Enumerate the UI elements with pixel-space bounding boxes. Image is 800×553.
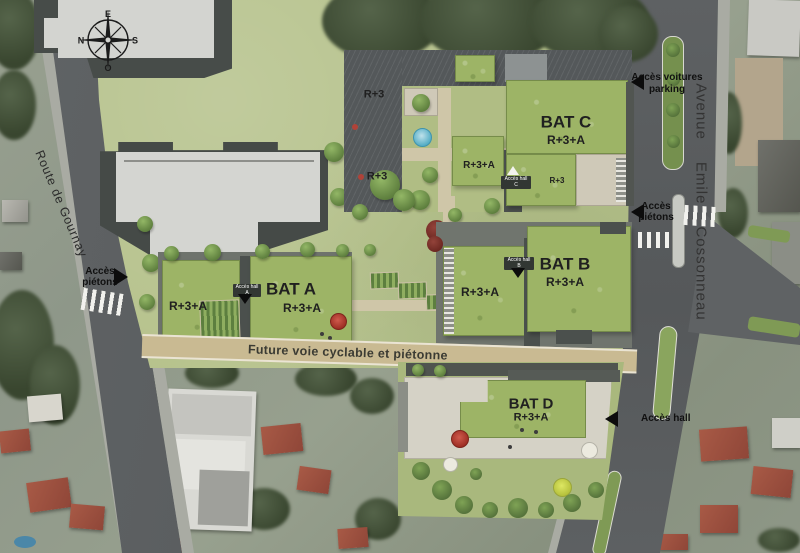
red-tree: [427, 236, 443, 252]
existing-building-2-main: [116, 152, 320, 222]
tree: [364, 244, 376, 256]
aerial-house: [26, 477, 72, 513]
floor-tag: R+3+A: [461, 286, 499, 298]
access-arrow-left-icon: [605, 411, 618, 427]
access-hall-c-badge: Accès hall C: [501, 176, 531, 189]
tree: [393, 189, 415, 211]
access-arrow-left-icon: [631, 74, 644, 90]
white-parasol: [443, 457, 458, 472]
terrace-furniture: [534, 430, 538, 434]
site-plan-map: E S O N: [0, 0, 800, 553]
access-hall-b-arrow-icon: [511, 268, 525, 278]
bush: [588, 482, 604, 498]
aerial-house: [2, 200, 28, 222]
bat-a-label: BAT A: [266, 281, 316, 298]
bush: [666, 103, 680, 117]
stairs: [444, 248, 454, 334]
terrace-furniture: [320, 332, 324, 336]
tree: [434, 365, 446, 377]
access-pedestrian-left-line1: Accès: [85, 267, 114, 277]
bush: [432, 480, 452, 500]
aerial-house: [296, 466, 331, 494]
tree: [448, 208, 462, 222]
pedestrian-refuge-island: [672, 194, 685, 268]
bat-d-label: BAT D: [509, 397, 554, 412]
bat-d-floors: R+3+A: [514, 413, 549, 424]
tree: [164, 246, 179, 261]
bush: [412, 462, 430, 480]
access-parking-line2: parking: [649, 85, 685, 95]
compass-east-label: E: [105, 9, 111, 19]
avenue-word: Avenue: [693, 83, 710, 140]
roof-edge: [600, 222, 626, 234]
aerial-house: [700, 505, 738, 533]
aerial-house: [0, 252, 22, 270]
cycle-path-label: Future voie cyclable et piétonne: [248, 342, 448, 362]
avenue-median-strip: [662, 36, 684, 170]
white-parasol: [581, 442, 598, 459]
aerial-house: [261, 423, 304, 455]
existing-building-1-wing: [44, 18, 58, 48]
bat-c-label: BAT C: [541, 114, 592, 131]
tree: [350, 378, 394, 414]
tree: [412, 364, 424, 376]
tree: [352, 204, 368, 220]
bush: [667, 135, 680, 148]
tree: [139, 294, 155, 310]
compass-north-label: N: [78, 36, 85, 46]
aerial-building: [747, 0, 800, 57]
pool: [413, 128, 432, 147]
roof-edge: [556, 330, 592, 344]
bush: [482, 502, 498, 518]
planter: [358, 174, 364, 180]
garden-plot: [398, 281, 428, 299]
access-arrow-left-icon: [631, 204, 644, 220]
compass-rose: E S O N: [76, 8, 140, 72]
bush: [508, 498, 528, 518]
bush: [563, 494, 581, 512]
tree: [204, 244, 221, 261]
green-roof-patch: [455, 55, 495, 82]
access-arrow-right-icon: [114, 268, 128, 286]
terrace-furniture: [520, 428, 524, 432]
access-hall-a-arrow-icon: [238, 294, 252, 304]
floor-tag: R+3: [550, 177, 565, 185]
street-name-avenue-emile-cossonneau: AvenueEmileCossonneau: [694, 83, 709, 320]
bush: [470, 468, 482, 480]
avenue-word: Emile: [693, 162, 710, 205]
aerial-house: [0, 428, 31, 453]
garden-plot: [370, 271, 400, 289]
tree: [300, 242, 315, 257]
floor-tag: R+3: [367, 172, 388, 183]
tree: [0, 70, 36, 140]
aerial-pool: [14, 536, 36, 548]
aerial-house: [337, 527, 368, 549]
tree: [255, 244, 270, 259]
tree: [324, 142, 344, 162]
tree: [758, 528, 800, 552]
red-parasol: [330, 313, 347, 330]
terrace-furniture: [508, 445, 512, 449]
bat-b-floors: R+3+A: [546, 276, 584, 288]
aerial-house: [69, 504, 105, 531]
aerial-building-section: [198, 470, 250, 527]
aerial-house: [699, 426, 749, 461]
courtyard-path: [438, 88, 451, 212]
crosswalk: [638, 232, 674, 248]
aerial-building: [772, 418, 800, 448]
floor-tag: R+3: [364, 90, 385, 101]
bush: [538, 502, 554, 518]
tree: [412, 94, 430, 112]
aerial-house: [27, 394, 63, 423]
bush: [455, 496, 473, 514]
parking-strip: [398, 382, 408, 452]
roof-edge: [626, 82, 634, 206]
tree: [484, 198, 500, 214]
aerial-house: [751, 466, 794, 498]
floor-tag: R+3+A: [463, 161, 495, 171]
floor-tag: R+3+A: [169, 300, 207, 312]
aerial-building-section: [171, 394, 252, 437]
access-pedestrian-right-line1: Accès: [641, 202, 670, 212]
tree: [422, 167, 438, 183]
red-parasol: [451, 430, 469, 448]
access-hall-c-arrow-icon: [507, 166, 519, 175]
tree: [137, 216, 153, 232]
access-pedestrian-left-line2: piétons: [82, 278, 118, 288]
bat-a-floors: R+3+A: [283, 302, 321, 314]
bush: [666, 43, 680, 57]
building-seam: [124, 160, 314, 162]
bat-b-label: BAT B: [540, 256, 591, 273]
compass-south-label: S: [132, 36, 138, 46]
planter: [352, 124, 358, 130]
tree: [336, 244, 349, 257]
bat-c-floors: R+3+A: [547, 134, 585, 146]
aerial-building: [758, 140, 800, 212]
roof-panel: [505, 54, 547, 82]
access-hall-label: Accès hall: [641, 414, 690, 424]
compass-west-label: O: [104, 63, 111, 72]
avenue-word: Cossonneau: [693, 226, 710, 320]
